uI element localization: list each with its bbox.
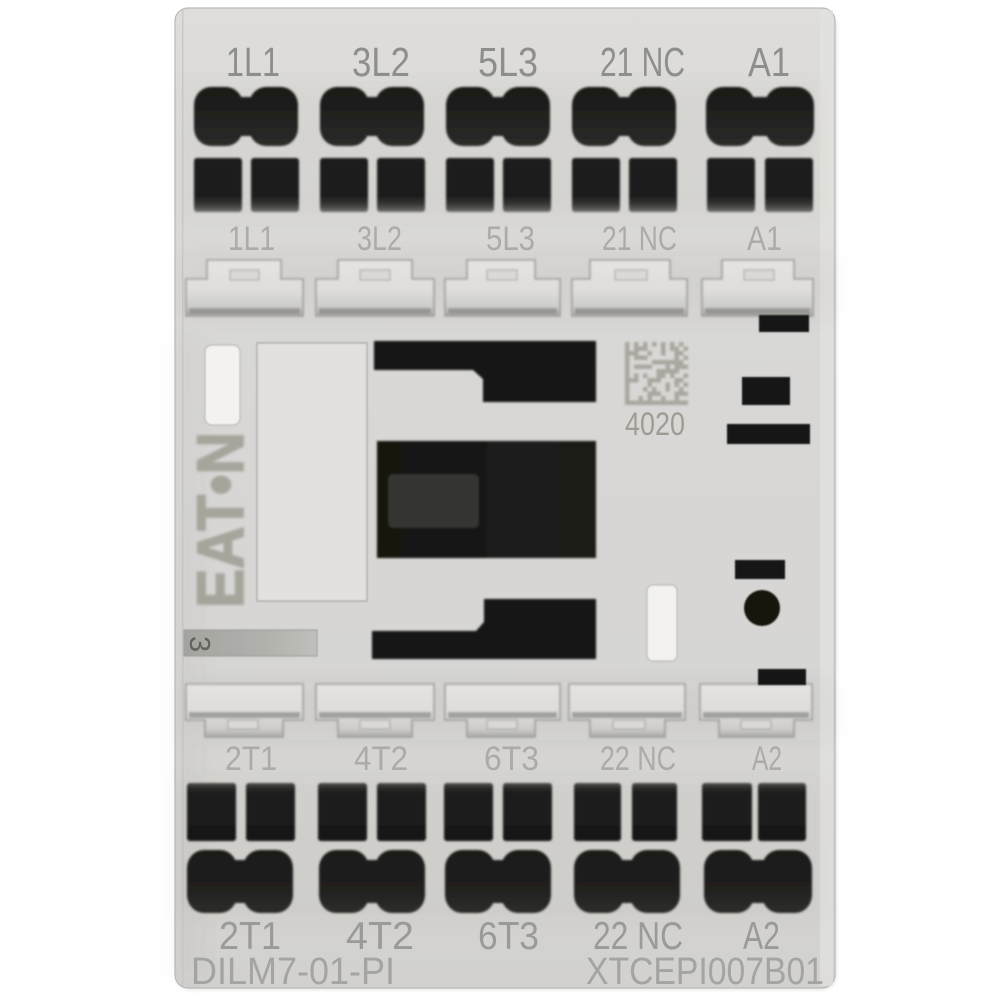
svg-text:1L1: 1L1 xyxy=(228,220,275,258)
svg-text:DILM7-01-PI: DILM7-01-PI xyxy=(191,951,395,993)
svg-text:4020: 4020 xyxy=(625,406,685,442)
svg-text:6T3: 6T3 xyxy=(484,740,539,778)
svg-text:2T1: 2T1 xyxy=(225,740,277,778)
svg-text:XTCEPI007B01: XTCEPI007B01 xyxy=(586,951,824,993)
svg-text:A1: A1 xyxy=(748,39,790,85)
svg-text:21 NC: 21 NC xyxy=(600,39,685,85)
svg-text:4T2: 4T2 xyxy=(354,740,408,778)
svg-text:3L2: 3L2 xyxy=(352,39,410,85)
svg-text:A1: A1 xyxy=(747,220,782,258)
svg-text:1L1: 1L1 xyxy=(226,39,280,85)
svg-text:5L3: 5L3 xyxy=(478,39,538,85)
svg-text:22 NC: 22 NC xyxy=(600,740,676,778)
svg-text:A2: A2 xyxy=(752,740,782,778)
svg-text:6T3: 6T3 xyxy=(478,915,539,958)
svg-text:EAT•N: EAT•N xyxy=(183,432,257,608)
svg-text:3: 3 xyxy=(183,636,215,652)
svg-text:21 NC: 21 NC xyxy=(602,220,677,258)
svg-text:5L3: 5L3 xyxy=(486,220,535,258)
svg-text:3L2: 3L2 xyxy=(357,220,402,258)
